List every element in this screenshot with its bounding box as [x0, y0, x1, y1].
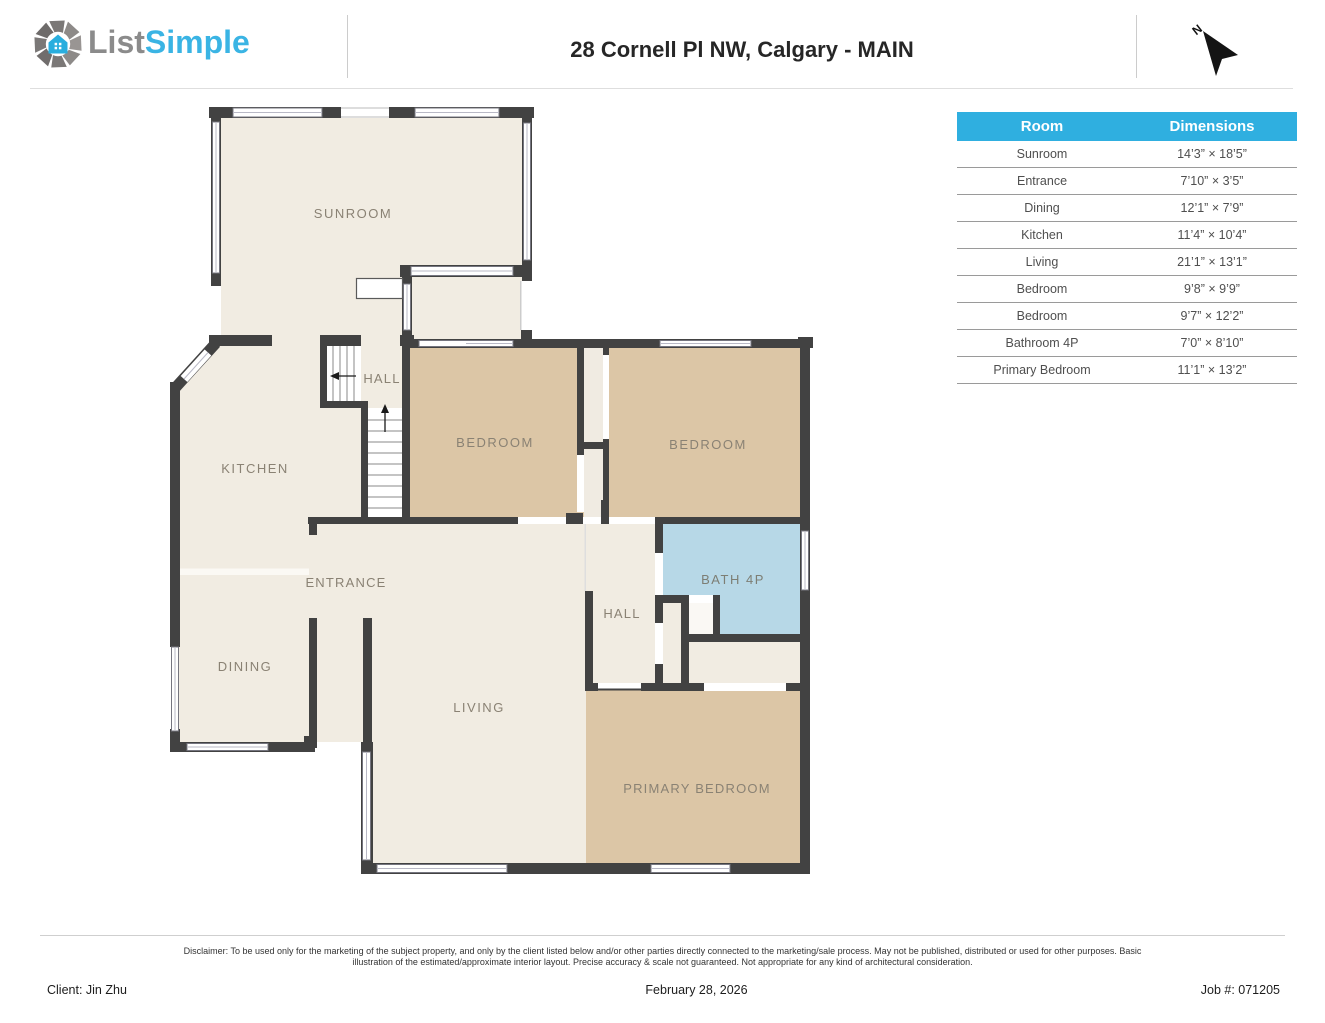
svg-text:ENTRANCE: ENTRANCE [305, 575, 386, 590]
svg-text:SUNROOM: SUNROOM [314, 206, 392, 221]
svg-text:KITCHEN: KITCHEN [221, 461, 289, 476]
svg-text:LIVING: LIVING [453, 700, 505, 715]
svg-text:BEDROOM: BEDROOM [669, 437, 747, 452]
svg-text:BEDROOM: BEDROOM [456, 435, 534, 450]
svg-text:HALL: HALL [363, 371, 400, 386]
svg-text:PRIMARY BEDROOM: PRIMARY BEDROOM [623, 781, 771, 796]
svg-text:DINING: DINING [218, 659, 273, 674]
svg-text:HALL: HALL [603, 606, 640, 621]
svg-text:BATH 4P: BATH 4P [701, 572, 765, 587]
